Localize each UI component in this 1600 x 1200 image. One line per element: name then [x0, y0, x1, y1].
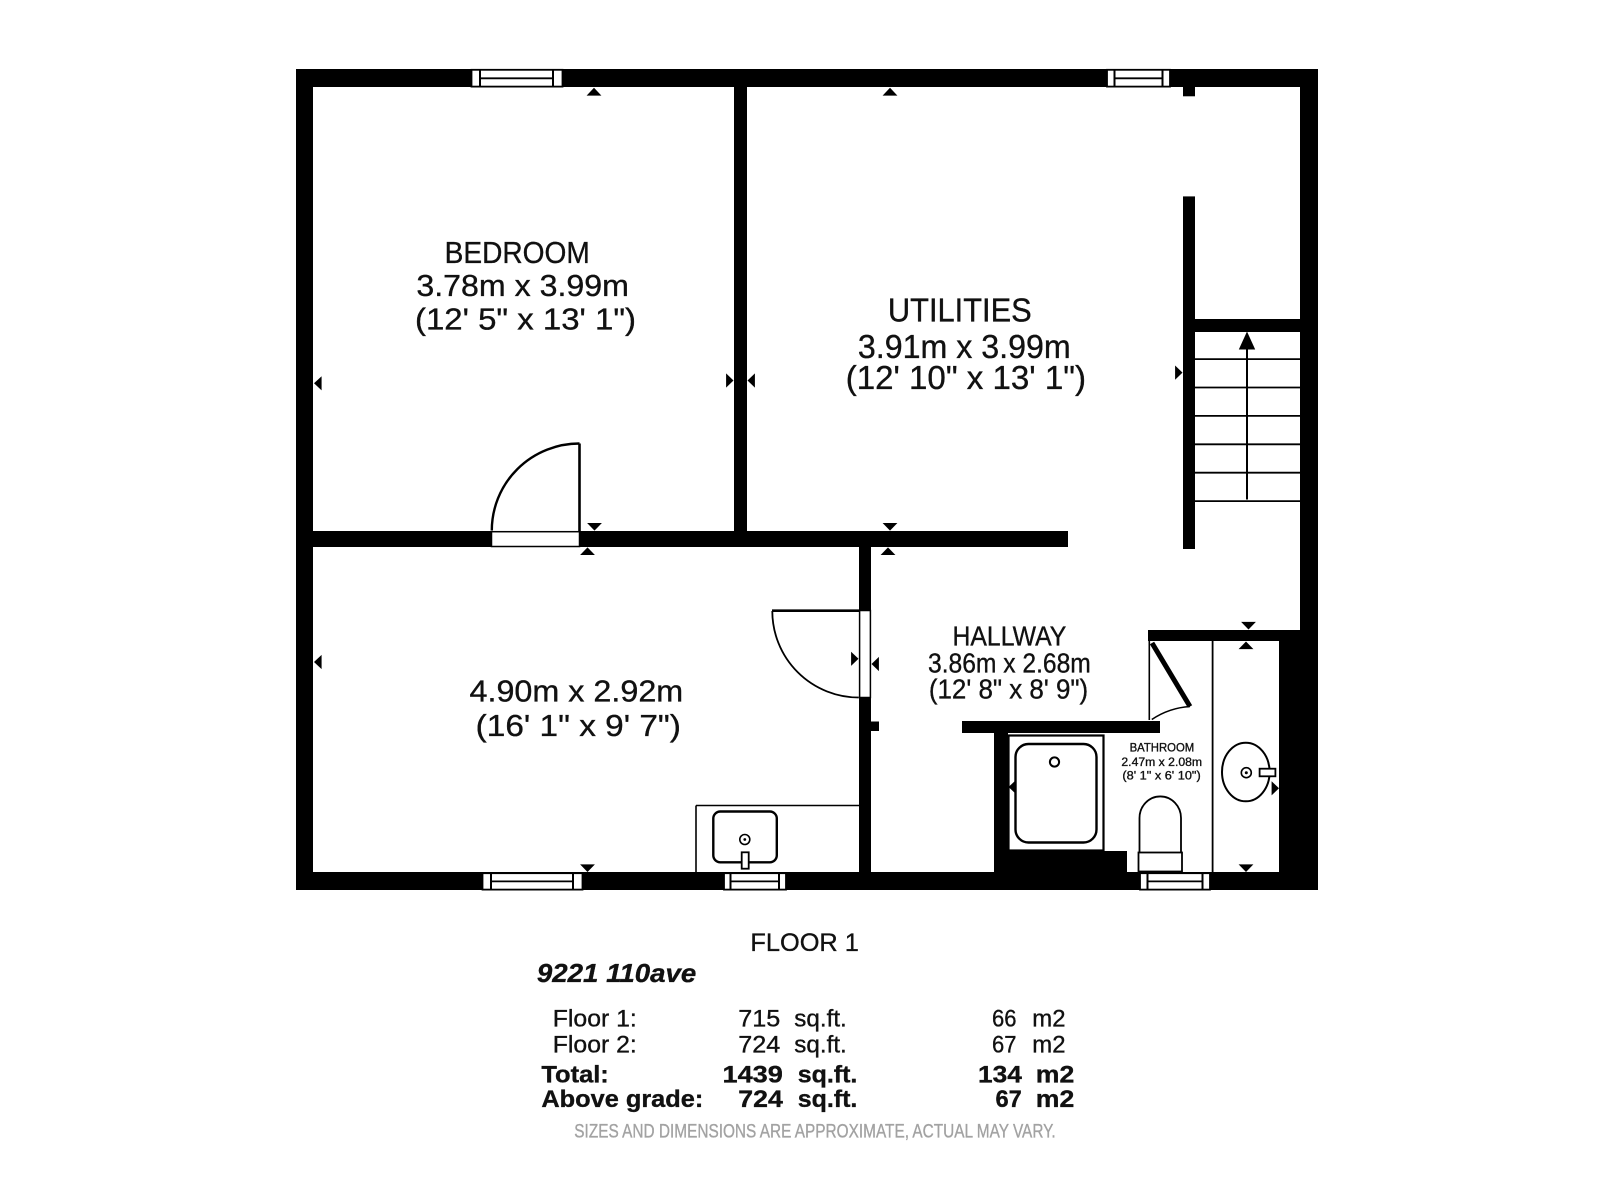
svg-text:sq.ft.: sq.ft.	[798, 1061, 858, 1088]
svg-text:sq.ft.: sq.ft.	[794, 1005, 847, 1032]
svg-text:m2: m2	[1036, 1086, 1075, 1113]
svg-text:m2: m2	[1036, 1061, 1075, 1088]
svg-text:715: 715	[738, 1005, 780, 1032]
svg-text:2.47m x 2.08m: 2.47m x 2.08m	[1121, 755, 1202, 769]
svg-text:Above grade:: Above grade:	[541, 1086, 703, 1113]
svg-text:(12' 5" x 13' 1"): (12' 5" x 13' 1")	[415, 301, 636, 336]
svg-text:(8' 1" x 6' 10"): (8' 1" x 6' 10")	[1122, 769, 1200, 783]
svg-text:BEDROOM: BEDROOM	[445, 235, 590, 270]
svg-text:3.78m x 3.99m: 3.78m x 3.99m	[416, 268, 628, 303]
svg-text:FLOOR 1: FLOOR 1	[750, 929, 859, 957]
svg-text:BATHROOM: BATHROOM	[1130, 741, 1195, 755]
svg-text:(12' 10" x 13' 1"): (12' 10" x 13' 1")	[846, 359, 1086, 396]
svg-text:sq.ft.: sq.ft.	[798, 1086, 858, 1113]
svg-text:(12' 8" x 8' 9"): (12' 8" x 8' 9")	[929, 674, 1088, 705]
svg-text:(16' 1" x 9' 7"): (16' 1" x 9' 7")	[476, 708, 681, 743]
svg-text:4.90m x 2.92m: 4.90m x 2.92m	[470, 673, 684, 708]
svg-text:Total:: Total:	[541, 1061, 608, 1088]
svg-text:724: 724	[738, 1031, 780, 1058]
svg-text:Floor 2:: Floor 2:	[553, 1031, 637, 1058]
svg-text:UTILITIES: UTILITIES	[888, 292, 1032, 329]
svg-text:m2: m2	[1032, 1005, 1065, 1032]
svg-text:67: 67	[992, 1031, 1017, 1058]
svg-text:Floor 1:: Floor 1:	[553, 1005, 637, 1032]
svg-text:724: 724	[738, 1086, 783, 1113]
svg-text:sq.ft.: sq.ft.	[794, 1031, 847, 1058]
svg-text:66: 66	[992, 1005, 1017, 1032]
svg-text:1439: 1439	[723, 1061, 783, 1088]
svg-text:9221 110ave: 9221 110ave	[537, 958, 696, 988]
svg-text:67: 67	[996, 1086, 1022, 1113]
svg-text:134: 134	[978, 1061, 1023, 1088]
svg-text:SIZES AND DIMENSIONS ARE APPRO: SIZES AND DIMENSIONS ARE APPROXIMATE, AC…	[574, 1120, 1055, 1142]
svg-text:m2: m2	[1032, 1031, 1065, 1058]
